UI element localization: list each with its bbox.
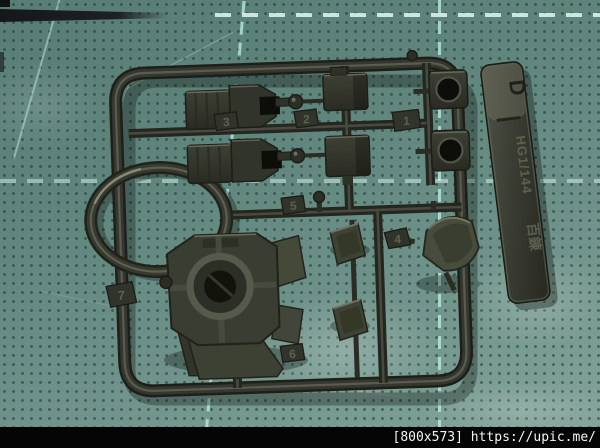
claw-part-lower (187, 137, 328, 184)
socket-cube-lower (431, 130, 470, 171)
part-number-1: 1 (403, 114, 410, 128)
watermark-text: [800x573] https://upic.me/ (393, 430, 600, 445)
part-number-6: 6 (289, 347, 296, 361)
runner-label-tab: D HG1/144 百錬 (480, 60, 559, 312)
part-number-7: 7 (117, 288, 125, 303)
part-number-4: 4 (394, 232, 401, 246)
sprue-runner-d: 3 2 1 5 4 6 7 (85, 49, 483, 393)
sprue-runner-photo-overlay: 3 2 1 5 4 6 7 D HG1/14 (0, 0, 600, 448)
photo-of-model-kit-sprue: 3 2 1 5 4 6 7 D HG1/14 (0, 0, 600, 448)
socket-cube-upper (429, 70, 468, 109)
part-number-3: 3 (223, 115, 230, 129)
part-number-5: 5 (290, 199, 297, 213)
block-part-lower (325, 135, 371, 186)
watermark-bar: [800x573] https://upic.me/ (0, 427, 600, 448)
runner-letter: D (504, 78, 531, 97)
part-number-2: 2 (303, 112, 310, 126)
wedge-part-lower (333, 299, 368, 340)
wedge-part-upper (330, 223, 365, 264)
